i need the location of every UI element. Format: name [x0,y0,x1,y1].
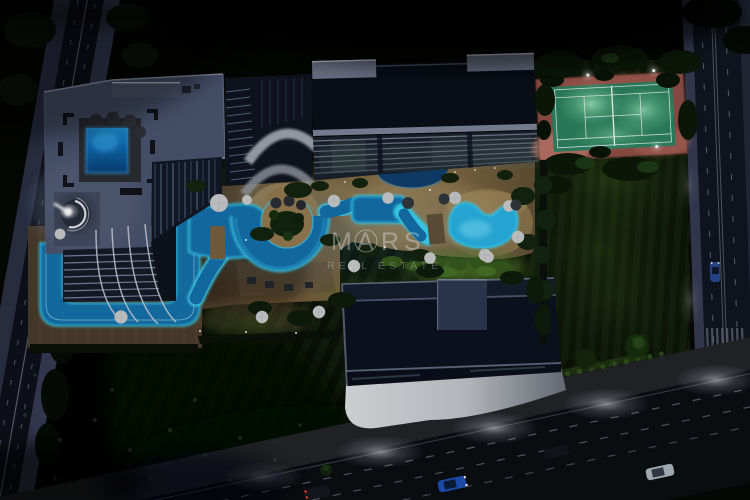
svg-text:S: S [404,228,428,256]
svg-text:R: R [381,228,407,256]
svg-text:REAL ESTATE: REAL ESTATE [327,260,442,272]
